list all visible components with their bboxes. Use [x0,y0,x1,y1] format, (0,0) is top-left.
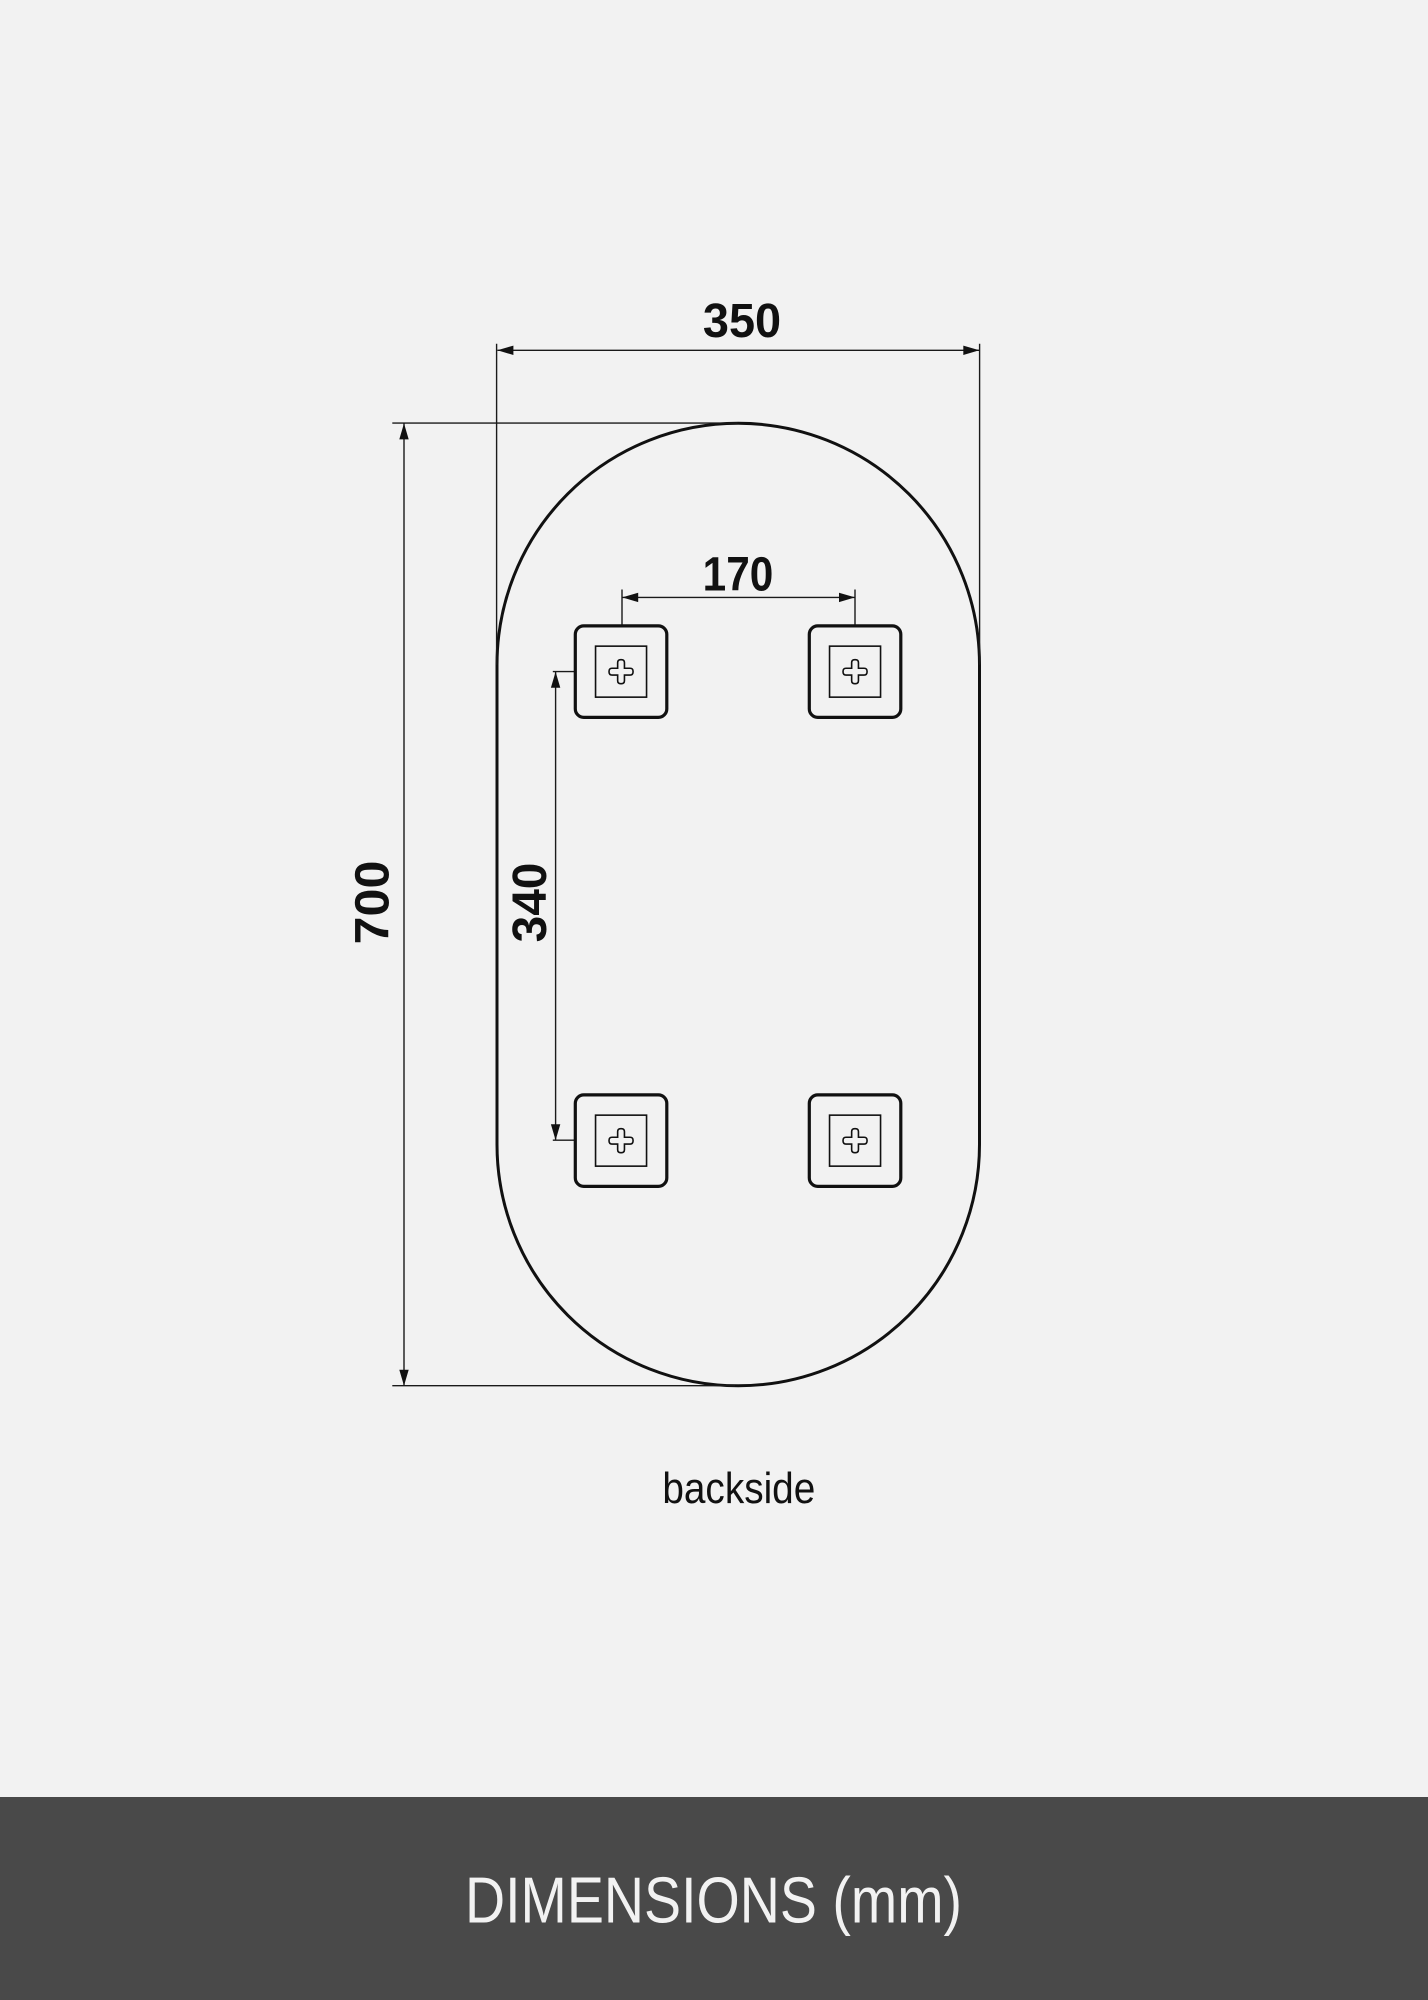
svg-text:DIMENSIONS (mm): DIMENSIONS (mm) [465,1863,962,1936]
svg-text:340: 340 [503,863,557,943]
svg-text:350: 350 [703,294,781,348]
svg-text:170: 170 [703,547,774,601]
svg-text:backside: backside [662,1463,815,1513]
svg-text:700: 700 [345,861,399,945]
